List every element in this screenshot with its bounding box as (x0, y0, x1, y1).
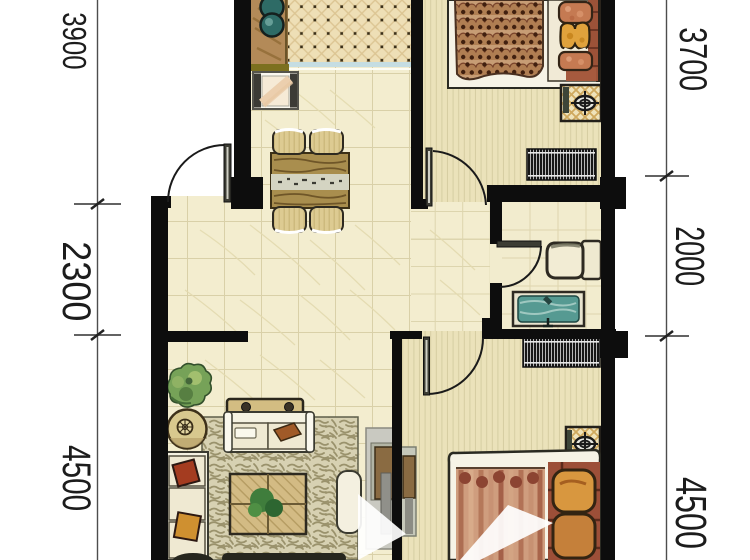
svg-text:4500: 4500 (54, 445, 98, 511)
svg-text:3900: 3900 (55, 12, 92, 69)
svg-text:3700: 3700 (671, 27, 714, 91)
svg-text:4500: 4500 (666, 477, 715, 549)
svg-text:2000: 2000 (667, 226, 712, 286)
svg-text:2300: 2300 (54, 241, 98, 321)
